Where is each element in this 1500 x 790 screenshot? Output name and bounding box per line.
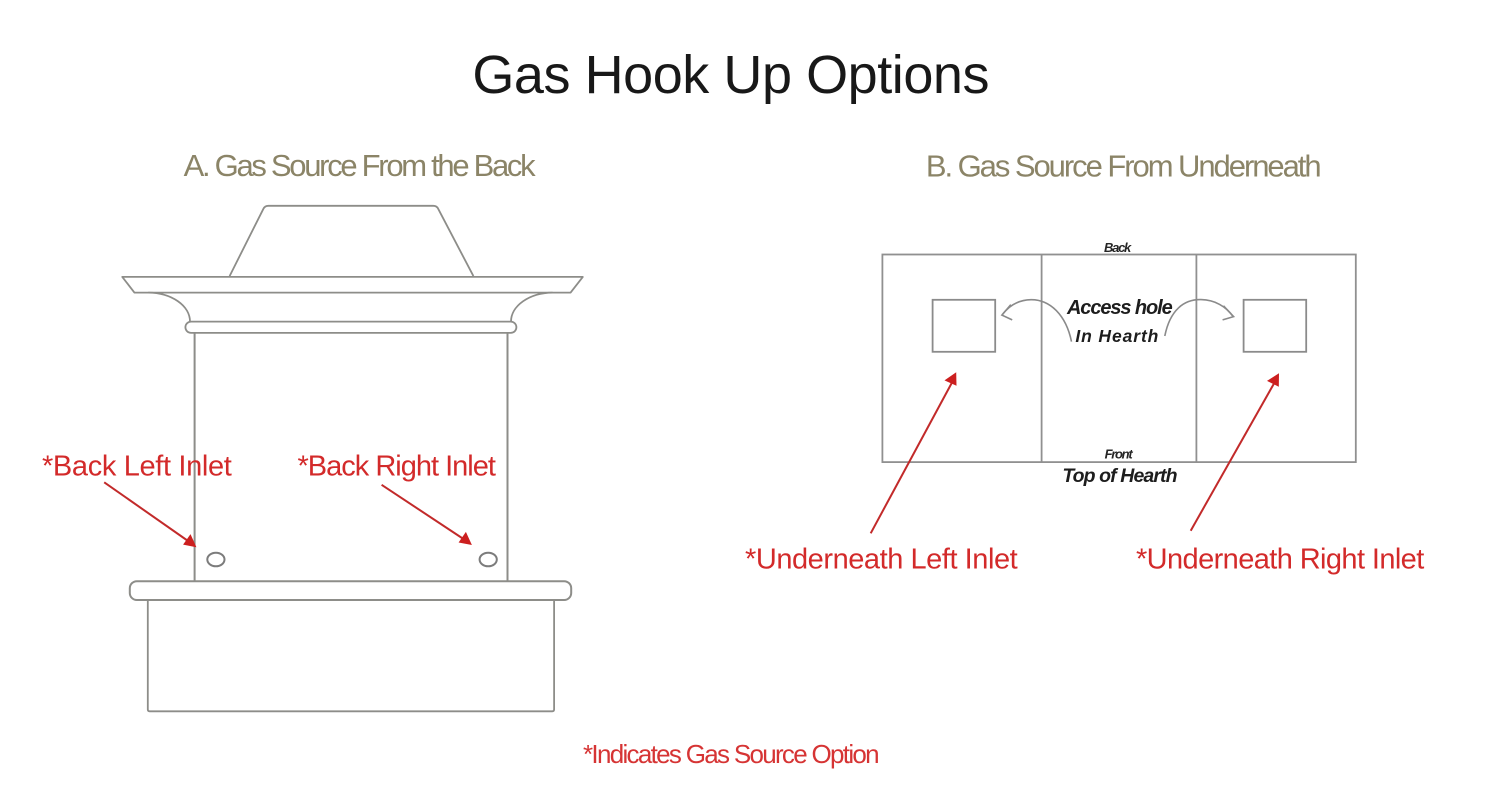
svg-text:Gas Hook Up Options: Gas Hook Up Options — [472, 45, 989, 105]
svg-text:*Back Right Inlet: *Back Right Inlet — [298, 451, 496, 483]
svg-text:B. Gas Source From Underneath: B. Gas Source From Underneath — [926, 149, 1321, 184]
svg-text:*Indicates Gas Source Option: *Indicates Gas Source Option — [583, 739, 878, 769]
svg-text:Front: Front — [1105, 447, 1134, 462]
svg-text:Back: Back — [1104, 240, 1132, 255]
svg-text:A. Gas Source From the Back: A. Gas Source From the Back — [184, 148, 536, 183]
svg-text:*Back Left Inlet: *Back Left Inlet — [42, 451, 232, 483]
svg-text:*Underneath Left Inlet: *Underneath Left Inlet — [745, 543, 1018, 575]
svg-text:Access hole: Access hole — [1066, 297, 1173, 319]
svg-text:In Hearth: In Hearth — [1075, 326, 1159, 346]
svg-text:Top of Hearth: Top of Hearth — [1062, 465, 1177, 487]
svg-text:*Underneath Right Inlet: *Underneath Right Inlet — [1136, 543, 1424, 575]
